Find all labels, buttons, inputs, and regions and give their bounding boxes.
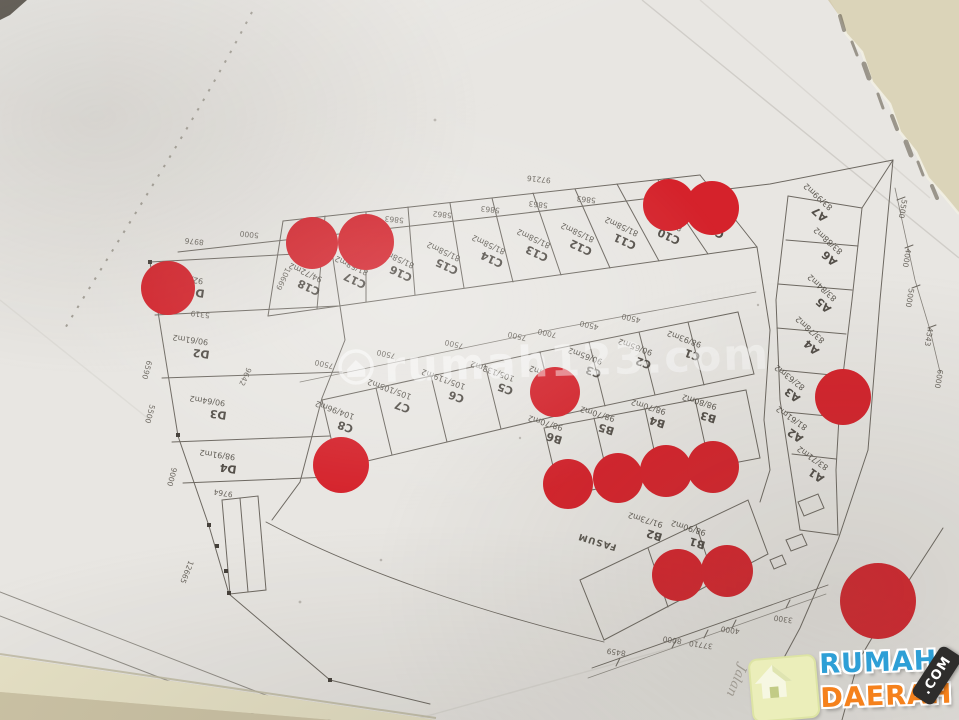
red-sticker — [701, 545, 753, 597]
red-sticker — [313, 437, 369, 493]
red-sticker — [687, 441, 739, 493]
red-sticker — [593, 453, 643, 503]
red-sticker — [338, 214, 394, 270]
house-icon — [750, 657, 798, 705]
red-sticker — [141, 261, 195, 315]
red-sticker — [543, 459, 593, 509]
red-sticker — [652, 549, 704, 601]
rumah-daerah-logo: RUMAH DAERAH .COM — [743, 644, 959, 720]
site-plan-drawing: 8976 5000 5863 5862 5863 5863 5863 97216… — [0, 0, 959, 720]
red-sticker — [286, 217, 338, 269]
red-sticker — [840, 563, 916, 639]
red-sticker — [640, 445, 692, 497]
site-plan-photo: 8976 5000 5863 5862 5863 5863 5863 97216… — [0, 0, 959, 720]
red-sticker — [685, 181, 739, 235]
red-sticker — [815, 369, 871, 425]
logo-house-icon — [747, 654, 820, 720]
